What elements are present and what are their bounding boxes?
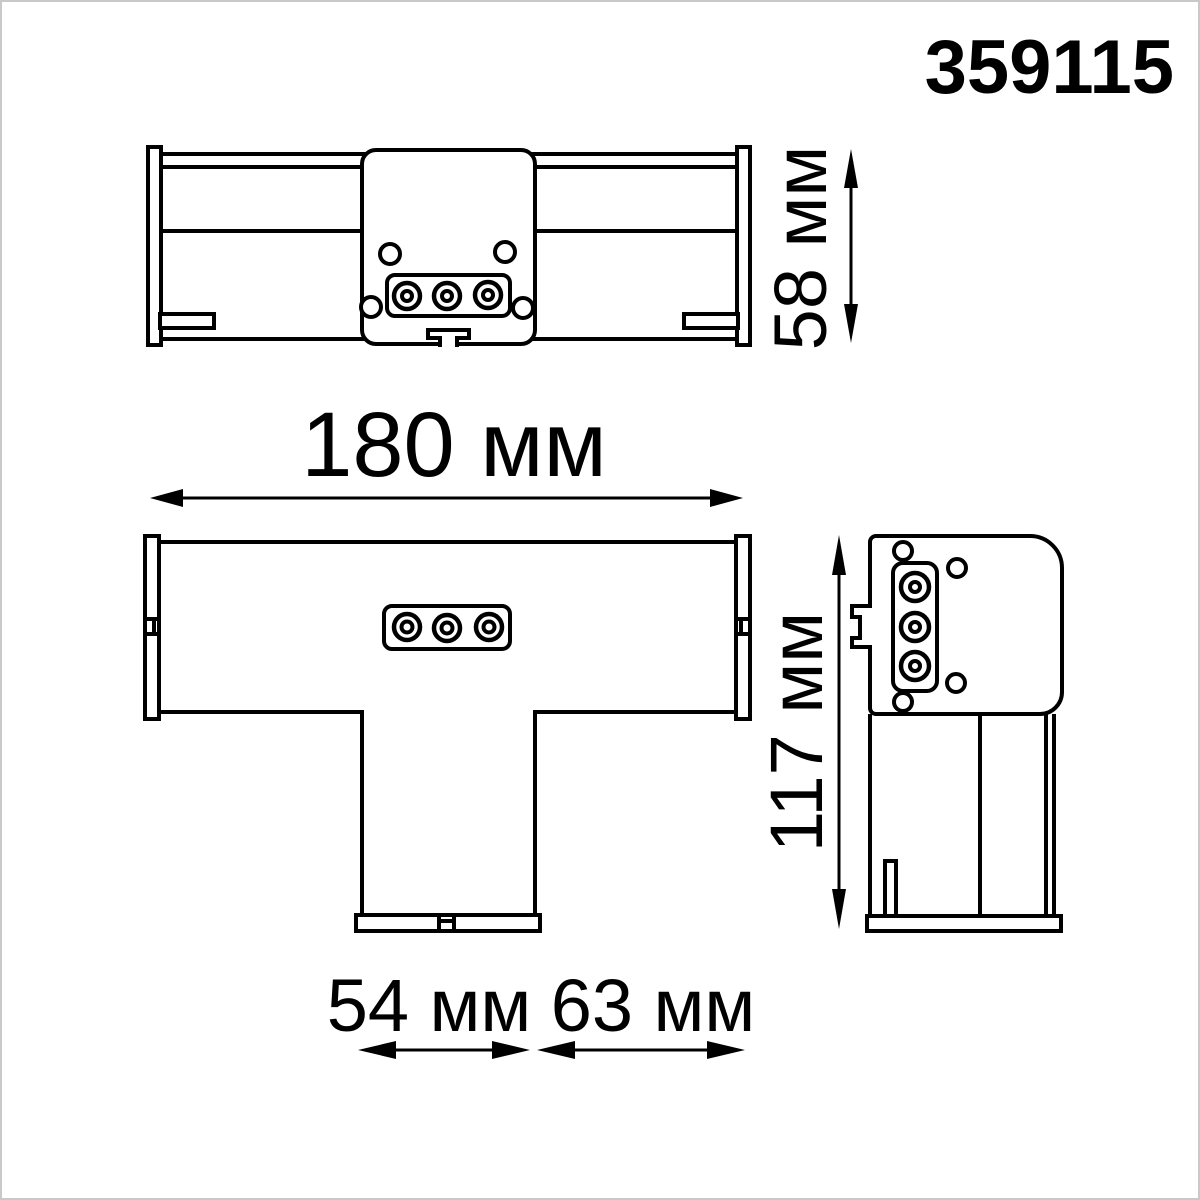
dimension-stem-width-label: 54 мм — [327, 964, 532, 1047]
dimension-stem-width: 54 мм — [327, 964, 532, 1059]
dimension-height-label: 58 мм — [759, 146, 842, 351]
dimension-length-label: 180 мм — [301, 394, 607, 496]
screw-hole — [495, 242, 515, 262]
arrow-up-icon — [844, 149, 858, 188]
terminal-contact-center — [442, 291, 452, 301]
drawing-canvas: 58 мм 180 мм 117 мм 54 мм 63 мм 359115 — [0, 0, 1200, 1200]
technical-drawing: 58 мм 180 мм 117 мм 54 мм 63 мм 359115 — [2, 2, 1200, 1200]
side-view-drawing — [852, 536, 1062, 931]
arrow-left-icon — [150, 489, 183, 507]
screw-hole — [948, 559, 966, 577]
dimension-depth-label: 117 мм — [755, 612, 838, 852]
arrow-up-icon — [832, 535, 846, 575]
screw-hole — [894, 542, 912, 560]
terminal-contact-center — [402, 291, 412, 301]
top-view-drawing — [148, 147, 750, 347]
front-view-right-end-cap-notch — [741, 619, 750, 634]
terminal-contact-center — [910, 582, 920, 592]
arrow-down-icon — [832, 889, 846, 929]
front-view-left-end-cap-lower — [145, 634, 159, 719]
side-view-inner-tab — [885, 861, 896, 916]
screw-hole — [947, 674, 965, 692]
screw-hole — [361, 297, 381, 317]
top-view-left-tab — [160, 314, 214, 328]
front-view-left-end-cap-notch — [145, 619, 154, 634]
dimension-length: 180 мм — [150, 394, 743, 507]
front-view-left-end-cap-upper — [145, 536, 159, 619]
front-view-stem-cap-notch — [439, 921, 454, 931]
dimension-branch-width-label: 63 мм — [551, 964, 756, 1047]
terminal-contact-center — [910, 661, 920, 671]
terminal-contact-center — [910, 622, 920, 632]
arrow-right-icon — [710, 489, 743, 507]
terminal-contact-center — [484, 622, 495, 633]
front-view-stem-cap-right-plate — [454, 915, 540, 931]
top-view-right-tab — [684, 314, 738, 328]
screw-hole — [380, 244, 400, 264]
front-view-t-body — [159, 542, 736, 915]
terminal-contact-center — [483, 290, 493, 300]
dimension-branch-width: 63 мм — [537, 964, 755, 1059]
front-view-stem-cap-left-plate — [356, 915, 439, 931]
screw-hole — [894, 693, 912, 711]
screw-hole — [513, 298, 533, 318]
front-view-right-end-cap-upper — [736, 536, 750, 619]
terminal-contact-center — [402, 622, 413, 633]
dimension-depth: 117 мм — [755, 535, 846, 929]
side-view-base-plate — [867, 916, 1061, 931]
front-view-drawing — [145, 536, 750, 931]
part-number: 359115 — [925, 25, 1174, 110]
arrow-down-icon — [844, 304, 858, 343]
front-view-right-end-cap-lower — [736, 634, 750, 719]
dimension-height: 58 мм — [759, 146, 858, 351]
terminal-contact-center — [442, 623, 453, 634]
